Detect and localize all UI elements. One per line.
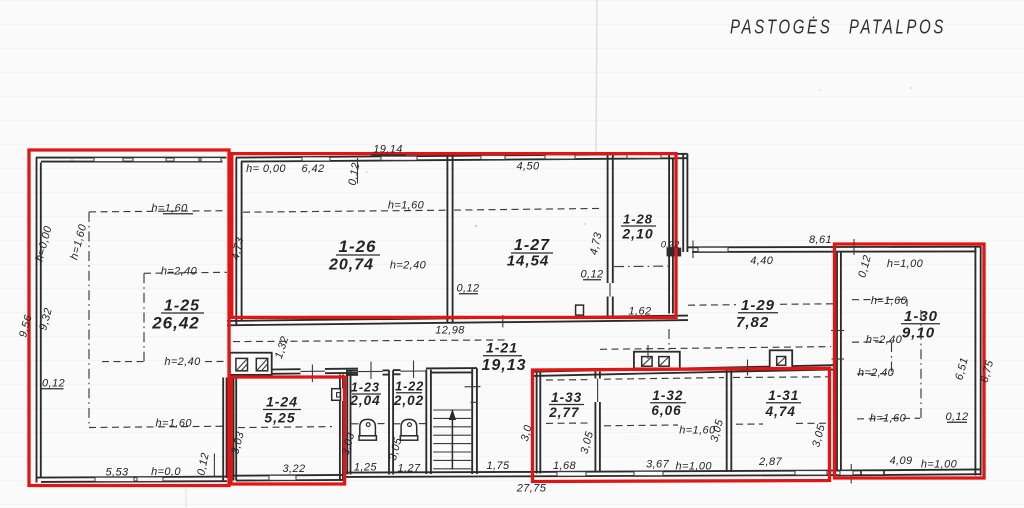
svg-text:19,14: 19,14 — [373, 144, 403, 156]
svg-text:6,42: 6,42 — [301, 163, 324, 175]
svg-text:h= 0,00: h= 0,00 — [246, 163, 286, 175]
svg-text:27,75: 27,75 — [516, 483, 547, 495]
svg-text:1-31: 1-31 — [768, 388, 799, 403]
svg-text:1,25: 1,25 — [354, 462, 377, 474]
svg-text:2,77: 2,77 — [548, 405, 580, 420]
svg-text:12,98: 12,98 — [435, 325, 465, 337]
svg-text:0,12: 0,12 — [42, 378, 65, 390]
svg-text:1-27: 1-27 — [514, 237, 550, 254]
svg-text:1-32: 1-32 — [652, 388, 683, 403]
svg-text:14,54: 14,54 — [507, 253, 550, 270]
svg-text:h=0,0: h=0,0 — [151, 466, 181, 478]
svg-text:1-25: 1-25 — [164, 298, 200, 315]
svg-text:8,61: 8,61 — [809, 234, 832, 246]
svg-text:9,10: 9,10 — [902, 325, 935, 342]
svg-text:0,12: 0,12 — [580, 269, 603, 281]
svg-text:1-21: 1-21 — [486, 340, 518, 356]
svg-text:0,12: 0,12 — [856, 254, 874, 279]
svg-text:5,25: 5,25 — [264, 410, 295, 426]
svg-text:7,82: 7,82 — [736, 314, 769, 331]
svg-text:0,12: 0,12 — [945, 411, 968, 423]
svg-text:h=1,00: h=1,00 — [921, 458, 958, 470]
svg-text:h=1,60: h=1,60 — [388, 200, 425, 212]
svg-text:19,13: 19,13 — [481, 357, 526, 374]
svg-text:1-30: 1-30 — [904, 308, 938, 325]
svg-text:3,67: 3,67 — [646, 458, 669, 470]
svg-text:2,04: 2,04 — [349, 393, 380, 408]
svg-text:3,22: 3,22 — [282, 463, 305, 475]
svg-text:0,12: 0,12 — [195, 452, 212, 477]
svg-text:1,75: 1,75 — [486, 460, 509, 472]
svg-text:1,27: 1,27 — [397, 463, 420, 475]
svg-text:h=2,40: h=2,40 — [866, 334, 903, 346]
svg-text:20,74: 20,74 — [328, 257, 374, 274]
svg-text:PASTOGĖS PATALPOS: PASTOGĖS PATALPOS — [730, 17, 946, 39]
svg-text:1-26: 1-26 — [338, 237, 376, 256]
svg-text:h=2,40: h=2,40 — [390, 260, 427, 272]
svg-text:2,02: 2,02 — [393, 393, 424, 408]
svg-text:0,12: 0,12 — [456, 283, 479, 295]
svg-text:h=1,00: h=1,00 — [887, 258, 924, 270]
svg-text:h=1,60: h=1,60 — [68, 222, 89, 261]
svg-text:1-28: 1-28 — [623, 212, 653, 227]
svg-text:2,10: 2,10 — [621, 226, 653, 242]
svg-text:26,42: 26,42 — [151, 314, 200, 333]
svg-text:2,87: 2,87 — [758, 456, 782, 468]
svg-text:h=1,60: h=1,60 — [871, 295, 908, 307]
svg-text:4,50: 4,50 — [516, 161, 539, 173]
svg-text:h=2,40: h=2,40 — [858, 367, 895, 379]
svg-text:1-22: 1-22 — [395, 380, 424, 394]
svg-text:4,74: 4,74 — [765, 404, 796, 419]
svg-text:h=1,00: h=1,00 — [676, 461, 713, 473]
svg-text:3,05: 3,05 — [709, 418, 727, 444]
svg-text:h=1,60: h=1,60 — [870, 412, 907, 424]
svg-text:0,22: 0,22 — [661, 240, 680, 251]
svg-text:0,12: 0,12 — [347, 162, 363, 187]
svg-text:6,06: 6,06 — [651, 403, 681, 418]
svg-text:1-33: 1-33 — [551, 390, 582, 405]
svg-text:4,09: 4,09 — [889, 455, 912, 467]
svg-text:h=2,40: h=2,40 — [161, 266, 198, 278]
svg-text:h=1,60: h=1,60 — [156, 417, 193, 429]
svg-text:3,05: 3,05 — [810, 423, 828, 449]
svg-text:1-24: 1-24 — [266, 394, 298, 410]
svg-text:1,32: 1,32 — [273, 335, 292, 361]
svg-text:1-29: 1-29 — [741, 297, 775, 314]
svg-text:9,56: 9,56 — [17, 313, 35, 339]
svg-text:5,53: 5,53 — [105, 467, 128, 479]
svg-text:3,05: 3,05 — [579, 429, 597, 455]
svg-text:h=2,40: h=2,40 — [164, 356, 201, 368]
svg-text:4,40: 4,40 — [750, 255, 773, 267]
svg-text:1,62: 1,62 — [628, 306, 651, 318]
svg-text:1,68: 1,68 — [553, 460, 576, 472]
svg-text:6,51: 6,51 — [953, 356, 971, 381]
svg-text:h=1,60: h=1,60 — [151, 203, 188, 215]
svg-text:4,73: 4,73 — [588, 231, 605, 256]
